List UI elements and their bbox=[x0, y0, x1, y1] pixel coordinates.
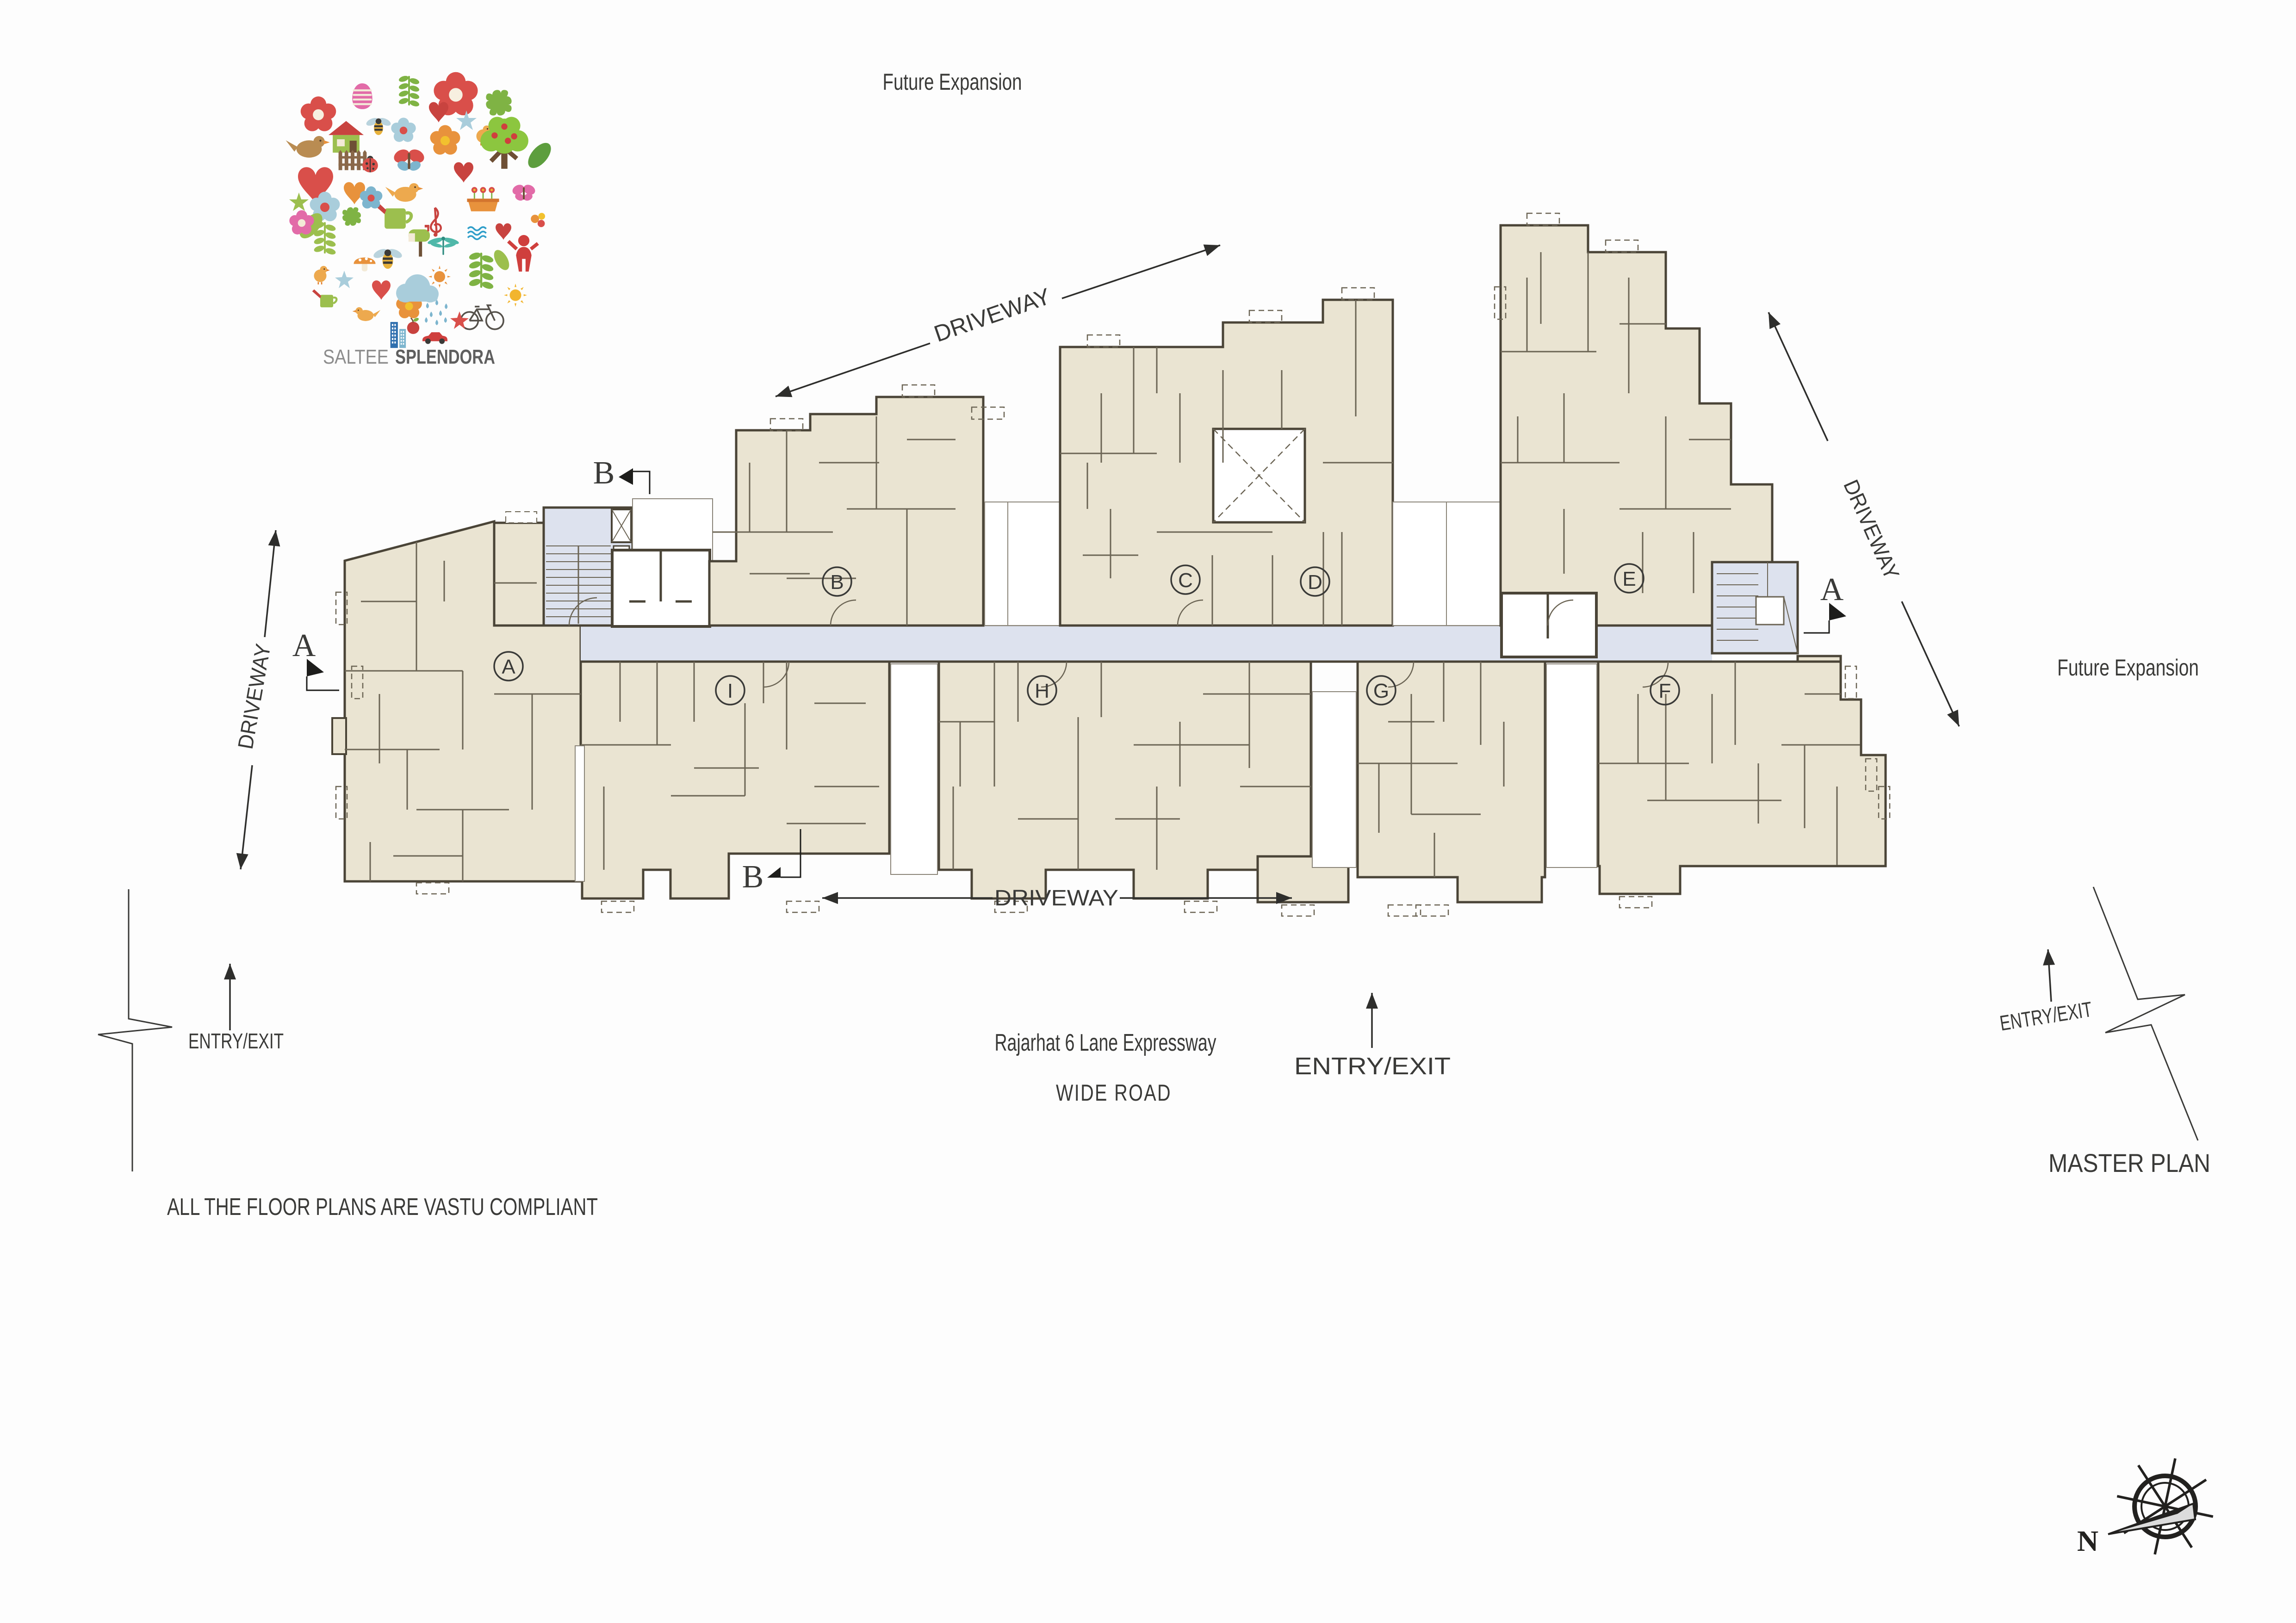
svg-text:ENTRY/EXIT: ENTRY/EXIT bbox=[188, 1029, 284, 1053]
svg-text:A: A bbox=[292, 628, 316, 663]
svg-text:Future Expansion: Future Expansion bbox=[2057, 655, 2199, 681]
svg-text:D: D bbox=[1308, 571, 1322, 594]
svg-text:DRIVEWAY: DRIVEWAY bbox=[994, 886, 1118, 911]
svg-text:MASTER PLAN: MASTER PLAN bbox=[2048, 1148, 2210, 1177]
svg-text:WIDE ROAD: WIDE ROAD bbox=[1056, 1080, 1172, 1106]
svg-text:ALL THE FLOOR PLANS ARE VASTU: ALL THE FLOOR PLANS ARE VASTU COMPLIANT bbox=[167, 1194, 598, 1220]
svg-text:Future Expansion: Future Expansion bbox=[883, 69, 1022, 95]
svg-text:E: E bbox=[1622, 568, 1636, 590]
svg-text:C: C bbox=[1178, 569, 1193, 592]
svg-text:A: A bbox=[1820, 572, 1844, 607]
svg-text:Rajarhat 6 Lane Expressway: Rajarhat 6 Lane Expressway bbox=[995, 1029, 1216, 1056]
svg-text:F: F bbox=[1659, 680, 1671, 702]
svg-text:B: B bbox=[593, 455, 615, 491]
svg-text:SALTEESPLENDORA: SALTEESPLENDORA bbox=[323, 346, 495, 368]
svg-text:A: A bbox=[502, 656, 515, 678]
svg-text:B: B bbox=[830, 571, 844, 594]
svg-text:G: G bbox=[1373, 680, 1389, 702]
svg-text:N: N bbox=[2077, 1524, 2098, 1557]
svg-text:H: H bbox=[1035, 680, 1049, 702]
svg-text:ENTRY/EXIT: ENTRY/EXIT bbox=[1294, 1053, 1451, 1080]
svg-text:I: I bbox=[727, 680, 733, 702]
svg-text:B: B bbox=[742, 859, 764, 895]
